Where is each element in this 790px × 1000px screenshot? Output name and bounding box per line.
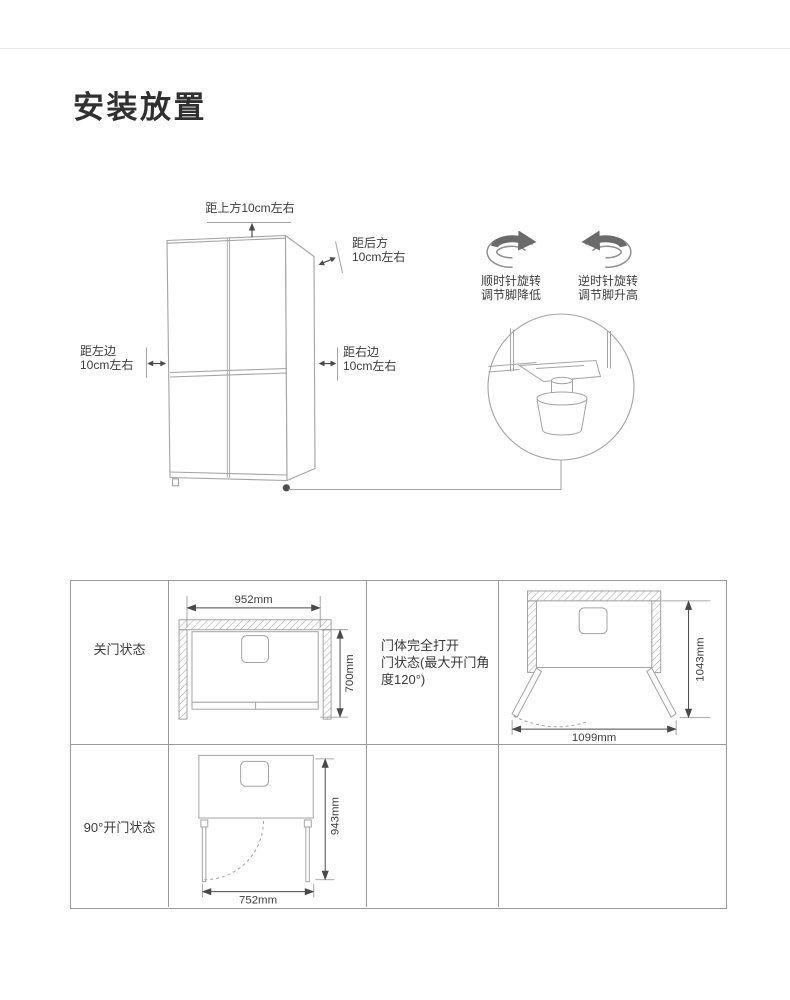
full-open-diagram: 1043mm 1099mm (499, 581, 726, 744)
foot-detail-circle (488, 314, 634, 460)
open90-label-cell: 90°开门状态 (71, 745, 169, 907)
clearance-top-label: 距上方10cm左右 (200, 202, 300, 216)
full-open-depth-dim: 1043mm (694, 637, 706, 681)
open90-diagram-cell: 943mm 752mm (169, 745, 367, 907)
closed-state-diagram: 952mm 700mm (169, 581, 366, 744)
fridge-foot-dot (283, 484, 290, 491)
empty-cell (499, 745, 726, 907)
open90-width-dim: 752mm (239, 895, 277, 907)
detail-connector-line (289, 461, 562, 490)
open90-depth-dim: 943mm (330, 797, 342, 835)
full-open-width-dim: 1099mm (572, 732, 616, 744)
empty-cell (367, 745, 499, 907)
clockwise-rotate-icon (492, 231, 537, 263)
clearance-back-label: 距后方 10cm左右 (352, 237, 405, 264)
closed-width-dim: 952mm (235, 594, 273, 606)
counterclockwise-caption: 逆时针旋转 调节脚升高 (559, 275, 657, 302)
full-open-note-cell: 门体完全打开 门状态(最大开门角 度120°) (367, 581, 499, 745)
full-open-diagram-cell: 1043mm 1099mm (499, 581, 726, 745)
open90-diagram: 943mm 752mm (169, 745, 366, 907)
counterclockwise-rotate-icon (582, 231, 627, 263)
clearance-right-label: 距右边 10cm左右 (343, 346, 396, 373)
full-open-note: 门体完全打开 门状态(最大开门角 度120°) (381, 637, 489, 688)
placement-table: 关门状态 (70, 580, 727, 909)
fridge-illustration (167, 236, 315, 486)
installation-diagram: 距上方10cm左右 距后方 10cm左右 距左边 10cm左右 距右边 10cm… (0, 0, 790, 560)
closed-state-label-cell: 关门状态 (71, 581, 169, 745)
closed-state-diagram-cell: 952mm 700mm (169, 581, 367, 745)
installation-line-art (0, 0, 790, 560)
open90-label: 90°开门状态 (84, 817, 156, 836)
closed-state-label: 关门状态 (93, 639, 145, 686)
clockwise-caption: 顺时针旋转 调节脚降低 (462, 275, 560, 302)
closed-depth-dim: 700mm (344, 654, 356, 692)
clearance-left-label: 距左边 10cm左右 (80, 345, 133, 372)
